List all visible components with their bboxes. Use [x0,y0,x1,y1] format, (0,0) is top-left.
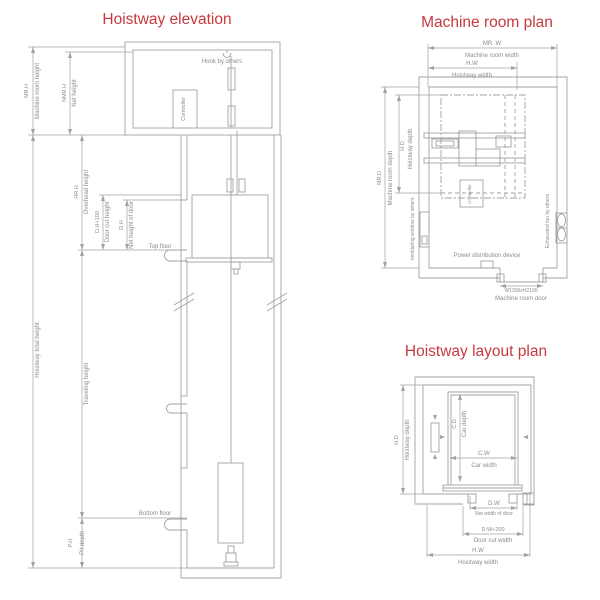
machine-room-structure-lines [419,77,567,282]
buffer [228,546,234,553]
elevation-labels: MR.H Machine room height NMR.H Net heigh… [24,59,242,555]
fan-blade-icon [558,228,566,241]
buffer [224,562,238,566]
buffer [226,553,236,562]
dim-dh100: Door cut height [105,201,111,242]
elevator-drawings: Hoistway elevation [0,0,600,600]
dim-dw: Net width of door [475,511,513,517]
dim-dw200: Door cut width [474,538,512,544]
safety-gear [231,262,240,269]
drawing-sheet: Hoistway elevation [0,0,600,600]
ventilating-window-label: Ventilating window by others [410,197,416,261]
machine-room-wall-inner [429,87,557,268]
dim-hw: Hoistway width [458,560,498,566]
machine-room-plan-drawing: Machine room plan [377,14,567,302]
dim-hw-abbr: H.W [466,61,478,67]
rope-hitch [228,68,235,90]
machine-room-title: Machine room plan [421,14,553,31]
layout-dimension-lines [400,385,530,557]
guide-marker-icon [433,415,437,420]
dim-nmrh-abbr: NMR.H [62,84,68,102]
layout-title: Hoistway layout plan [405,343,547,360]
machine-beam [424,133,525,138]
dim-ph-abbr: P.H [68,539,74,547]
dim-mrh-abbr: MR.H [24,84,30,98]
dim-nmrh: Net height [72,79,78,107]
ventilating-window-latch [422,236,427,244]
dim-mrd: Machine room depth [388,151,394,206]
dim-mrh: Machine room height [35,63,41,119]
counterweight-plan [431,423,439,452]
break-line [267,293,287,311]
dim-dh100-abbr: D.H+100 [95,211,101,233]
power-distribution-label: Power distribution device [454,253,521,259]
dim-hd: Hoistway depth [408,128,414,169]
dim-hw: Hoistway width [452,73,492,79]
elevation-title: Hoistway elevation [102,11,231,28]
car-wall-inner [451,395,515,485]
dim-cw: Car width [471,463,496,469]
car-wall-outer [448,392,518,485]
elevation-dimension-lines [28,47,187,568]
bottom-floor-label: Bottom floor [139,511,171,517]
dim-dw200-abbr: D.W+200 [481,527,504,533]
safety-gear [234,269,238,274]
fan-blade-icon [558,214,566,227]
dim-mrw-abbr: MR. W [483,41,502,47]
machine-room-outline [125,42,280,135]
mid-floor-sill [167,404,188,413]
guide-marker-icon [433,454,437,459]
controller-label: Controller [181,97,187,121]
car-platform [186,258,272,262]
dim-traveling: Traveling height [84,362,90,405]
door-size-label: W1200xH2100 [504,288,537,294]
power-distribution-box [481,261,493,268]
guide-marker-icon [440,435,445,439]
elevation-structure-lines [125,42,287,578]
dim-mrw: Machine room width [465,53,519,59]
top-floor-label: Top floor [148,244,171,250]
dim-dw-abbr: D.W [488,501,500,507]
dim-ph: Pit depth [80,531,86,555]
car-sheave [227,179,233,192]
dim-hd-abbr: H.D [394,435,400,445]
hook-label: Hook by others [202,59,242,65]
dim-dh-abbr: D.H [119,220,125,230]
machine-room-door-label: Machine room door [495,296,547,302]
dim-hd: Hoistway depth [405,419,411,460]
bottom-floor-sill [165,519,188,530]
break-line [174,293,194,311]
dim-hw-abbr: H.W [472,548,484,554]
machine-beam [424,158,525,163]
car-sheave [239,179,245,192]
elevator-car [192,195,268,258]
dim-hd-abbr: H.D [400,141,406,151]
traction-machine-body [459,131,476,166]
dim-cw-abbr: C.W [478,451,490,457]
door-frame-return [523,493,534,505]
dim-hrh: Overhead height [84,169,90,214]
dim-hrh-abbr: HR.H [74,185,80,198]
exhaust-fan-label: Exhausted fan by others [545,194,551,248]
hoistway-layout-plan-drawing: Hoistway layout plan [394,343,547,566]
door-jamb [509,494,517,503]
rope-hitch [228,106,235,126]
dim-cd: Car depth [462,411,468,437]
hoistway-elevation-drawing: Hoistway elevation [24,11,287,578]
dim-mrd-abbr: MR.D [377,171,383,185]
controller-plan-label: Controller [467,184,472,204]
dim-dh: Net height of door [129,201,135,249]
counterweight [218,463,243,543]
dim-total-height: Hoistway total height [35,322,41,378]
dim-cd-abbr: C.D [452,419,458,429]
hook-icon [223,50,231,58]
traction-machine-motor-inner [436,141,454,146]
guide-marker-icon [523,435,528,439]
top-floor-sill [165,250,188,261]
layout-structure-lines [415,377,534,505]
door-jamb [468,494,476,503]
ventilating-window [420,212,429,247]
